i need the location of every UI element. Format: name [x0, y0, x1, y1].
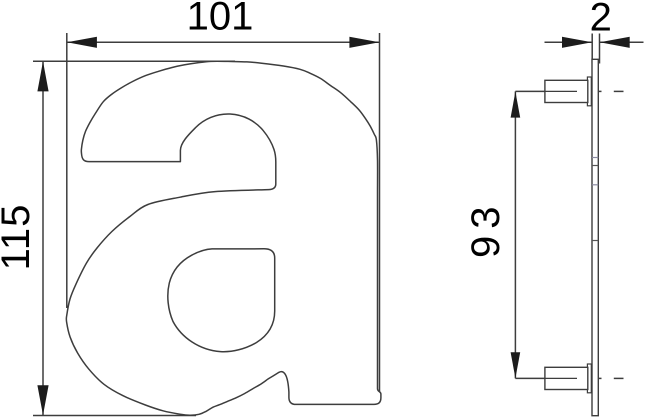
svg-text:101: 101 — [187, 0, 254, 38]
svg-text:93: 93 — [464, 200, 508, 258]
svg-text:115: 115 — [0, 204, 38, 271]
svg-text:2: 2 — [590, 0, 612, 39]
